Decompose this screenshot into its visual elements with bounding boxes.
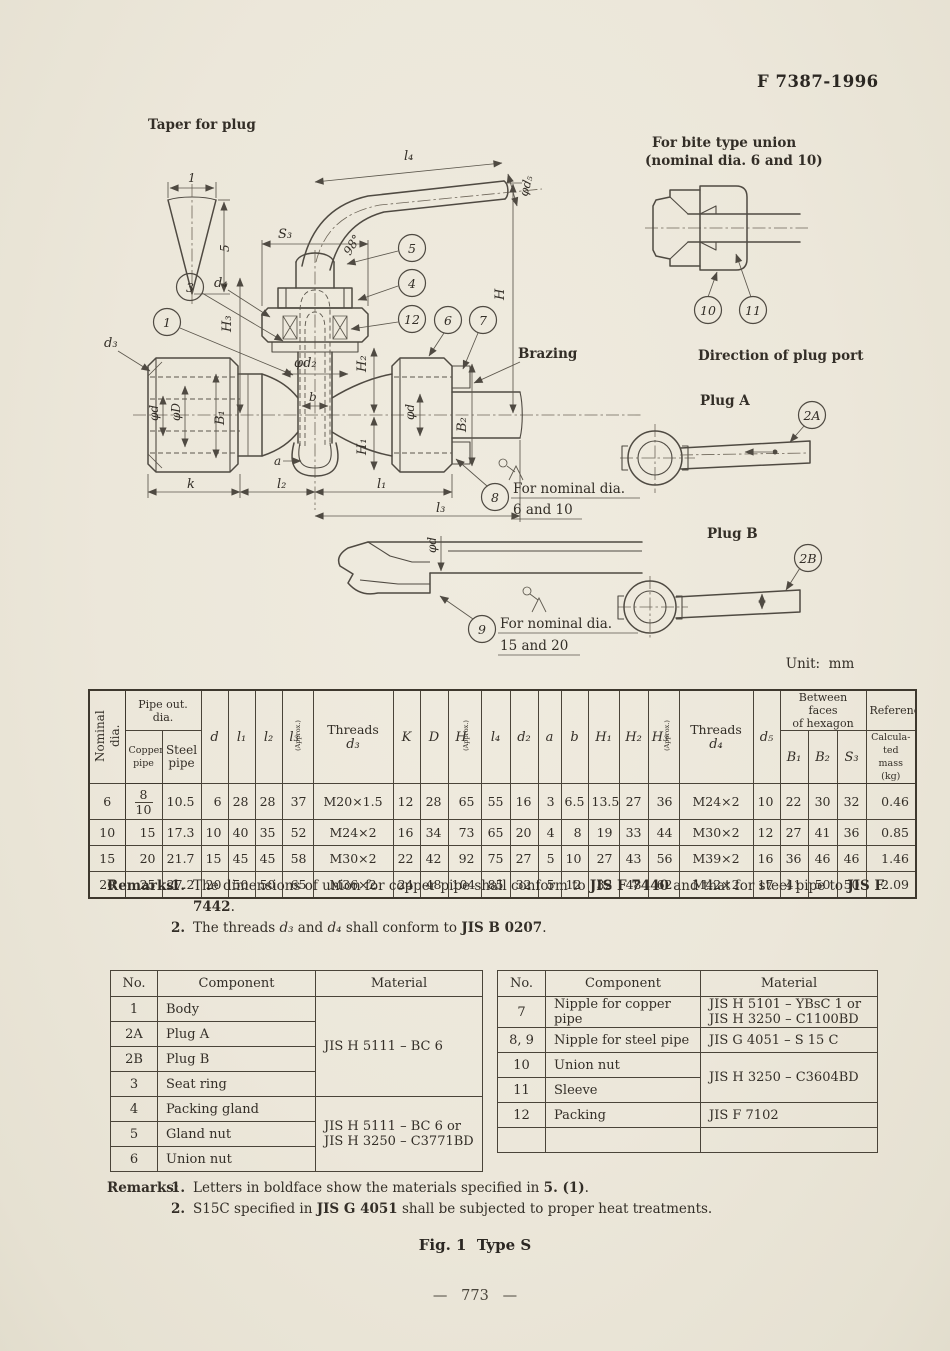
svg-text:12: 12: [404, 312, 420, 327]
col-d: d: [201, 690, 228, 784]
materials-table-left: No. Component Material 1 Body JIS H 5111…: [110, 970, 483, 1172]
remarks-label: Remarks:: [107, 1178, 171, 1199]
plug-a-view: [620, 424, 810, 493]
dim-d3: d₃: [104, 336, 118, 351]
note9-line1: For nominal dia.: [500, 616, 612, 632]
material-row: 10 Union nut JIS H 3250 – C3604BD: [498, 1053, 878, 1078]
remark-2: The threads d₃ and d₄ shall conform to J…: [193, 918, 546, 939]
dim-l2: l₂: [277, 477, 286, 492]
svg-text:2A: 2A: [803, 408, 821, 423]
table-row: 6 810 10.5 628 2837 M20×1.5 1228 6555 16…: [89, 784, 916, 820]
balloon-2B: 2B: [795, 545, 822, 572]
bite-union-title-line1: For bite type union: [652, 135, 796, 151]
col-l3: l₃(Approx.): [282, 690, 313, 784]
dimension-annotations: l₄ φd₅ S₃ 98° H H₃ d₄ d₃ φ: [104, 149, 640, 522]
balloon-11: 11: [740, 297, 767, 324]
col-nominal-dia: Nominal dia.: [89, 690, 125, 784]
material-7: JIS H 5101 – YBsC 1 orJIS H 3250 – C1100…: [701, 997, 878, 1028]
balloon-5: 5: [399, 235, 426, 262]
figure-caption: Fig. 1 Type S: [0, 1236, 950, 1254]
col-b: b: [561, 690, 588, 784]
note8-line1: For nominal dia.: [513, 481, 625, 497]
col-l4: l₄: [481, 690, 510, 784]
dim-phi-d5: φd₅: [516, 174, 535, 198]
balloon-9: 9: [469, 616, 496, 643]
col-l1: l₁: [228, 690, 255, 784]
col-d5: d₅: [753, 690, 780, 784]
note8-line2: 6 and 10: [513, 502, 573, 518]
svg-text:4: 4: [407, 276, 416, 291]
col-a: a: [538, 690, 561, 784]
empty-row: [498, 1128, 878, 1153]
table-row: 15 20 21.7 1545 4558 M30×2 2242 9275 275…: [89, 846, 916, 872]
col-material: Material: [701, 971, 878, 997]
dim-B1: B₁: [213, 410, 228, 426]
taper-height-label: 5: [218, 244, 232, 252]
col-component: Component: [158, 971, 316, 997]
material-group-1: JIS H 5111 – BC 6: [316, 997, 483, 1097]
brazing-label: Brazing: [518, 346, 578, 362]
col-component: Component: [546, 971, 701, 997]
standard-document-page: F 7387-1996 Taper for plug 1 5: [0, 0, 950, 1351]
dim-H3: H₃: [220, 315, 235, 333]
remarks-materials: Remarks: 1. Letters in boldface show the…: [107, 1178, 919, 1220]
balloon-6: 6: [435, 307, 462, 334]
balloon-1: 1: [154, 309, 181, 336]
material-row: 12 Packing JIS F 7102: [498, 1103, 878, 1128]
material-row: 7 Nipple for copper pipe JIS H 5101 – YB…: [498, 997, 878, 1028]
col-K: K: [393, 690, 420, 784]
svg-text:7: 7: [479, 313, 487, 328]
dim-H1: H₁: [355, 438, 370, 456]
table-row: 10 15 17.3 1040 3552 M24×2 1634 7365 204…: [89, 820, 916, 846]
dim-s3: S₃: [278, 227, 292, 242]
col-reference: Reference: [866, 690, 916, 731]
balloon-8: 8: [482, 484, 509, 511]
col-no: No.: [111, 971, 158, 997]
dim-a: a: [274, 454, 281, 468]
dimension-table: Nominal dia. Pipe out. dia. d l₁ l₂ l₃(A…: [88, 689, 917, 899]
col-calc-mass: Calcula-ted mass(kg): [866, 731, 916, 784]
svg-text:6: 6: [444, 313, 452, 328]
plug-b-label: Plug B: [707, 526, 758, 542]
taper-width-label: 1: [188, 171, 196, 185]
col-H1: H₁: [588, 690, 619, 784]
balloon-12: 12: [399, 306, 426, 333]
dim-phi-D: φD: [169, 403, 183, 421]
col-H: H(Approx.): [448, 690, 481, 784]
col-copper-pipe: Copper pipe: [125, 731, 162, 784]
col-pipe-out-dia: Pipe out. dia.: [125, 690, 201, 731]
svg-text:3: 3: [186, 280, 194, 295]
taper-title: Taper for plug: [148, 117, 256, 133]
col-B2: B₂: [808, 731, 837, 784]
dim-phi-d-left: φd: [147, 405, 161, 421]
materials-table-right: No. Component Material 7 Nipple for copp…: [497, 970, 878, 1153]
col-material: Material: [316, 971, 483, 997]
balloon-7: 7: [470, 307, 497, 334]
note9-line2: 15 and 20: [500, 638, 568, 654]
svg-text:1: 1: [163, 315, 171, 330]
plug-port-direction: Direction of plug port Plug A Plug B: [618, 348, 864, 640]
taper-detail: Taper for plug 1 5: [148, 117, 256, 304]
balloon-2A: 2A: [799, 402, 826, 429]
svg-text:2B: 2B: [798, 551, 816, 566]
technical-drawing: Taper for plug 1 5: [0, 0, 950, 672]
direction-heading: Direction of plug port: [698, 348, 864, 364]
col-d2: d₂: [510, 690, 538, 784]
col-no: No.: [498, 971, 546, 997]
col-threads-d3: Threadsd₃: [313, 690, 393, 784]
balloon-10: 10: [695, 297, 722, 324]
svg-text:10: 10: [700, 303, 716, 318]
col-l2: l₂: [255, 690, 282, 784]
col-steel-pipe: Steel pipe: [162, 731, 201, 784]
material-row: 4 Packing gland JIS H 5111 – BC 6 orJIS …: [111, 1097, 483, 1122]
balloon-4: 4: [399, 270, 426, 297]
dim-b: b: [309, 390, 317, 404]
dim-l1: l₁: [377, 477, 386, 492]
col-H2: H₂: [619, 690, 648, 784]
svg-text:5: 5: [408, 241, 416, 256]
col-between-faces: Between facesof hexagon: [780, 690, 866, 731]
bite-union-detail: For bite type union (nominal dia. 6 and …: [645, 135, 823, 297]
svg-text:11: 11: [745, 303, 761, 318]
dim-angle: 98°: [341, 232, 364, 257]
lower-union-detail: φd For nominal dia. 15 and 20: [339, 536, 642, 655]
dim-phi-d-detail: φd: [425, 537, 439, 553]
col-S3: S₃: [837, 731, 866, 784]
remark-1: Letters in boldface show the materials s…: [193, 1178, 589, 1199]
dim-H: H: [493, 288, 508, 301]
plug-b-view: [618, 576, 800, 640]
page-number: — 773 —: [0, 1288, 950, 1304]
plug-a-label: Plug A: [700, 393, 750, 409]
dim-phi-d-right: φd: [403, 404, 417, 420]
dim-l3: l₃: [436, 501, 445, 516]
svg-text:8: 8: [491, 490, 499, 505]
remarks-label: Remarks:: [107, 876, 171, 918]
col-threads-d4: Threadsd₄: [679, 690, 753, 784]
col-B1: B₁: [780, 731, 808, 784]
material-row: 1 Body JIS H 5111 – BC 6: [111, 997, 483, 1022]
balloon-3: 3: [177, 274, 204, 301]
bite-union-title-line2: (nominal dia. 6 and 10): [645, 153, 823, 169]
col-H3: H₃(Approx.): [648, 690, 679, 784]
material-group-2: JIS H 5111 – BC 6 orJIS H 3250 – C3771BD: [316, 1097, 483, 1172]
unit-label: Unit: mm: [735, 656, 905, 672]
dim-d4: d₄: [214, 276, 228, 291]
dim-k: k: [187, 477, 195, 492]
remarks-dimension-table: Remarks: 1. The dimensions of union for …: [107, 876, 919, 939]
svg-text:9: 9: [478, 622, 486, 637]
material-group-10-11: JIS H 3250 – C3604BD: [701, 1053, 878, 1103]
remark-1: The dimensions of union for copper pipe …: [193, 876, 919, 918]
col-D: D: [420, 690, 448, 784]
dim-phi-d2: φd₂: [294, 356, 317, 371]
material-row: 8, 9 Nipple for steel pipe JIS G 4051 – …: [498, 1028, 878, 1053]
dim-B2: B₂: [455, 417, 470, 433]
remark-2: S15C specified in JIS G 4051 shall be su…: [193, 1199, 712, 1220]
dim-l4: l₄: [404, 149, 413, 164]
dim-H2: H₂: [355, 355, 370, 373]
